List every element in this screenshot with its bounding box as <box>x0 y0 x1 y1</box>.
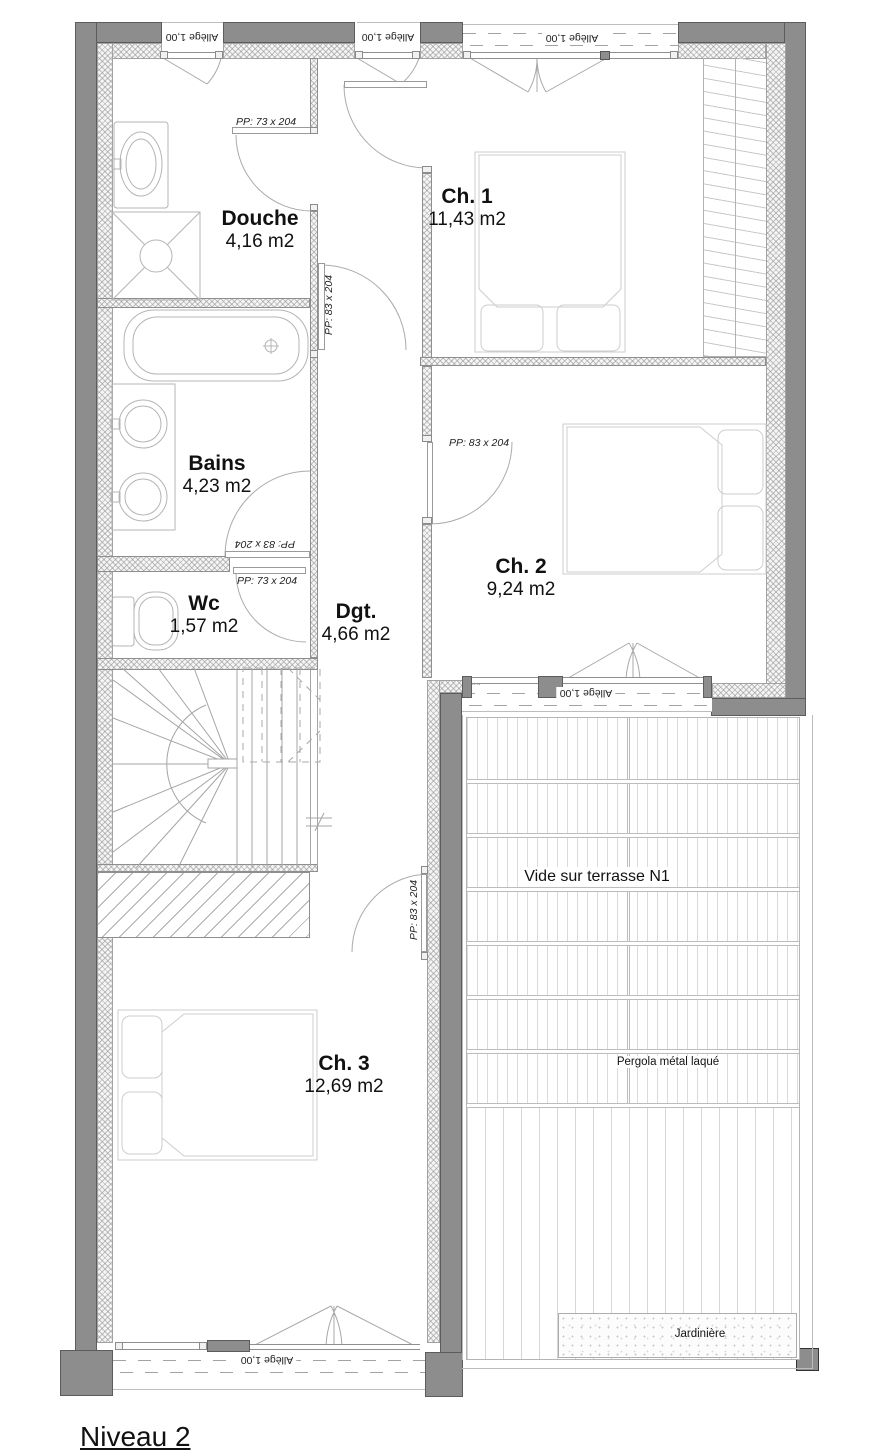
room-label-dgt: Dgt. 4,66 m2 <box>322 600 391 646</box>
door-jamb <box>310 204 318 211</box>
double-sinks <box>111 384 175 530</box>
bed-ch1 <box>475 152 625 352</box>
room-area: 4,66 m2 <box>322 624 391 646</box>
window-pier <box>703 676 712 698</box>
window-jamb <box>199 1342 207 1350</box>
room-area: 11,43 m2 <box>428 209 506 231</box>
sill-label: Allège 1,00 <box>359 31 418 43</box>
toilet <box>112 592 178 650</box>
door-jamb <box>422 435 432 442</box>
window-frame <box>355 52 420 59</box>
door-jamb <box>310 127 318 134</box>
bed-ch3 <box>118 1010 317 1160</box>
room-area: 9,24 m2 <box>487 579 556 601</box>
door-sill <box>250 1344 420 1350</box>
room-name: Bains <box>183 452 252 476</box>
door-leaf-ch1 <box>344 81 427 88</box>
sill-label: Allège 1,00 <box>557 687 616 699</box>
terrace-void-label: Vide sur terrasse N1 <box>519 867 675 887</box>
door-label-corridor: PP: 83 x 204 <box>323 275 335 335</box>
window-jamb <box>115 1342 123 1350</box>
door-label-ch2: PP: 83 x 204 <box>449 437 509 449</box>
room-name: Ch. 1 <box>428 185 506 209</box>
pergola-label: Pergola métal laqué <box>613 1056 723 1068</box>
room-area: 1,57 m2 <box>170 616 239 638</box>
door-leaf-douche <box>232 127 312 134</box>
door-label-bains: PP: 83 x 204 <box>235 538 295 550</box>
sill-label: Allège 1,00 <box>163 31 222 43</box>
room-label-ch1: Ch. 1 11,43 m2 <box>428 185 506 231</box>
window-jamb <box>463 51 471 59</box>
room-name: Wc <box>170 592 239 616</box>
door-label-ch3: PP: 83 x 204 <box>408 880 420 940</box>
bed-ch2 <box>563 424 766 574</box>
window-jamb <box>670 51 678 59</box>
window-jamb <box>355 51 363 59</box>
washbasin <box>112 122 168 208</box>
staircase <box>113 668 332 868</box>
room-name: Douche <box>221 207 298 231</box>
sheet-title: Niveau 2 <box>80 1421 191 1453</box>
window-jamb <box>412 51 420 59</box>
door-label-douche: PP: 73 x 204 <box>236 116 296 128</box>
window-mullion <box>600 51 610 60</box>
shower-tray <box>112 212 200 300</box>
door-jamb <box>422 166 432 173</box>
door-leaf-wc <box>233 567 306 574</box>
floor-plan: Douche 4,16 m2 Ch. 1 11,43 m2 Bains 4,23… <box>0 0 873 1455</box>
window-jamb <box>215 51 223 59</box>
room-label-ch2: Ch. 2 9,24 m2 <box>487 555 556 601</box>
room-label-douche: Douche 4,16 m2 <box>221 207 298 253</box>
door-jamb <box>422 517 432 524</box>
room-label-bains: Bains 4,23 m2 <box>183 452 252 498</box>
room-area: 4,23 m2 <box>183 476 252 498</box>
room-name: Ch. 2 <box>487 555 556 579</box>
window-frame <box>160 52 223 59</box>
door-leaf-ch3 <box>421 874 427 952</box>
door-jamb <box>310 350 318 358</box>
window-jamb <box>160 51 168 59</box>
room-name: Ch. 3 <box>304 1052 383 1076</box>
window-frame <box>463 52 678 59</box>
door-label-wc: PP: 73 x 204 <box>237 575 297 587</box>
bathtub <box>124 310 308 381</box>
room-label-ch3: Ch. 3 12,69 m2 <box>304 1052 383 1098</box>
room-area: 4,16 m2 <box>221 231 298 253</box>
room-area: 12,69 m2 <box>304 1076 383 1098</box>
planter-label: Jardinière <box>671 1328 730 1340</box>
door-leaf-bains <box>225 551 310 558</box>
door-leaf-ch2 <box>427 442 433 524</box>
door-jamb <box>421 866 428 874</box>
window-frame <box>462 677 712 684</box>
window-frame <box>115 1342 207 1350</box>
sill-label: Allège 1,00 <box>543 32 602 44</box>
window-pier <box>462 676 472 698</box>
room-name: Dgt. <box>322 600 391 624</box>
door-jamb <box>421 952 428 960</box>
window-pier <box>207 1340 250 1352</box>
sill-label: Allège 1,00 <box>238 1354 297 1366</box>
room-label-wc: Wc 1,57 m2 <box>170 592 239 638</box>
